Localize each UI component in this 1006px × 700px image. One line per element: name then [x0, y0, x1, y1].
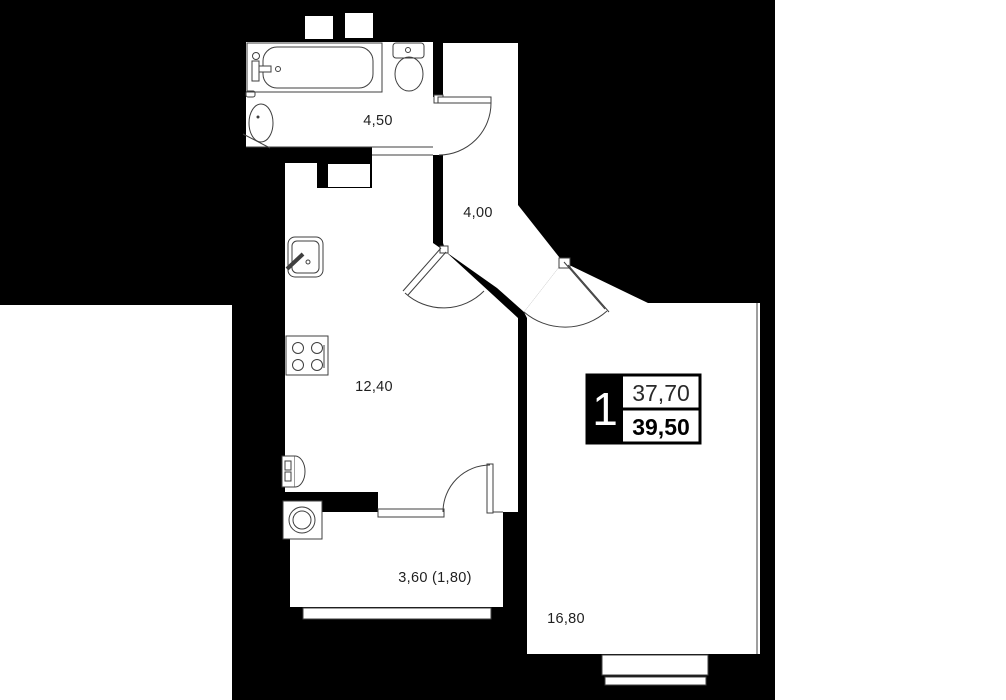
balcony-window — [378, 509, 444, 517]
bathroom-doorway — [431, 97, 445, 155]
vent-shaft — [328, 164, 370, 187]
label-bathroom-area: 4,50 — [363, 113, 392, 129]
unit-info-badge: 1 37,70 39,50 — [587, 375, 700, 443]
door-leaf-balcony — [487, 464, 493, 513]
label-balcony-area: 3,60 (1,80) — [398, 570, 471, 586]
door-hinge — [440, 246, 448, 253]
label-living-room-area: 16,80 — [547, 611, 585, 627]
unit-area-upper: 37,70 — [632, 380, 690, 406]
radiator-icon — [282, 456, 305, 487]
label-hallway-area: 4,00 — [463, 205, 492, 221]
unit-number: 1 — [592, 383, 618, 435]
floor-plan-page: 4,50 4,00 12,40 3,60 (1,80) 16,80 1 37,7… — [0, 0, 1006, 700]
vent-shaft — [285, 163, 317, 188]
washing-machine-icon — [283, 501, 322, 539]
floor-plan-svg: 4,50 4,00 12,40 3,60 (1,80) 16,80 1 37,7… — [0, 0, 1006, 700]
label-kitchen-area: 12,40 — [355, 379, 393, 395]
living-room-window — [602, 655, 708, 675]
balcony-rail — [303, 608, 491, 619]
vent-shaft — [345, 13, 373, 38]
door-leaf-bathroom — [438, 97, 491, 103]
vent-shaft — [305, 16, 333, 39]
room-living — [524, 262, 760, 654]
unit-area-lower: 39,50 — [632, 414, 690, 440]
stove-icon — [286, 336, 328, 375]
living-room-window-sill — [605, 677, 706, 685]
